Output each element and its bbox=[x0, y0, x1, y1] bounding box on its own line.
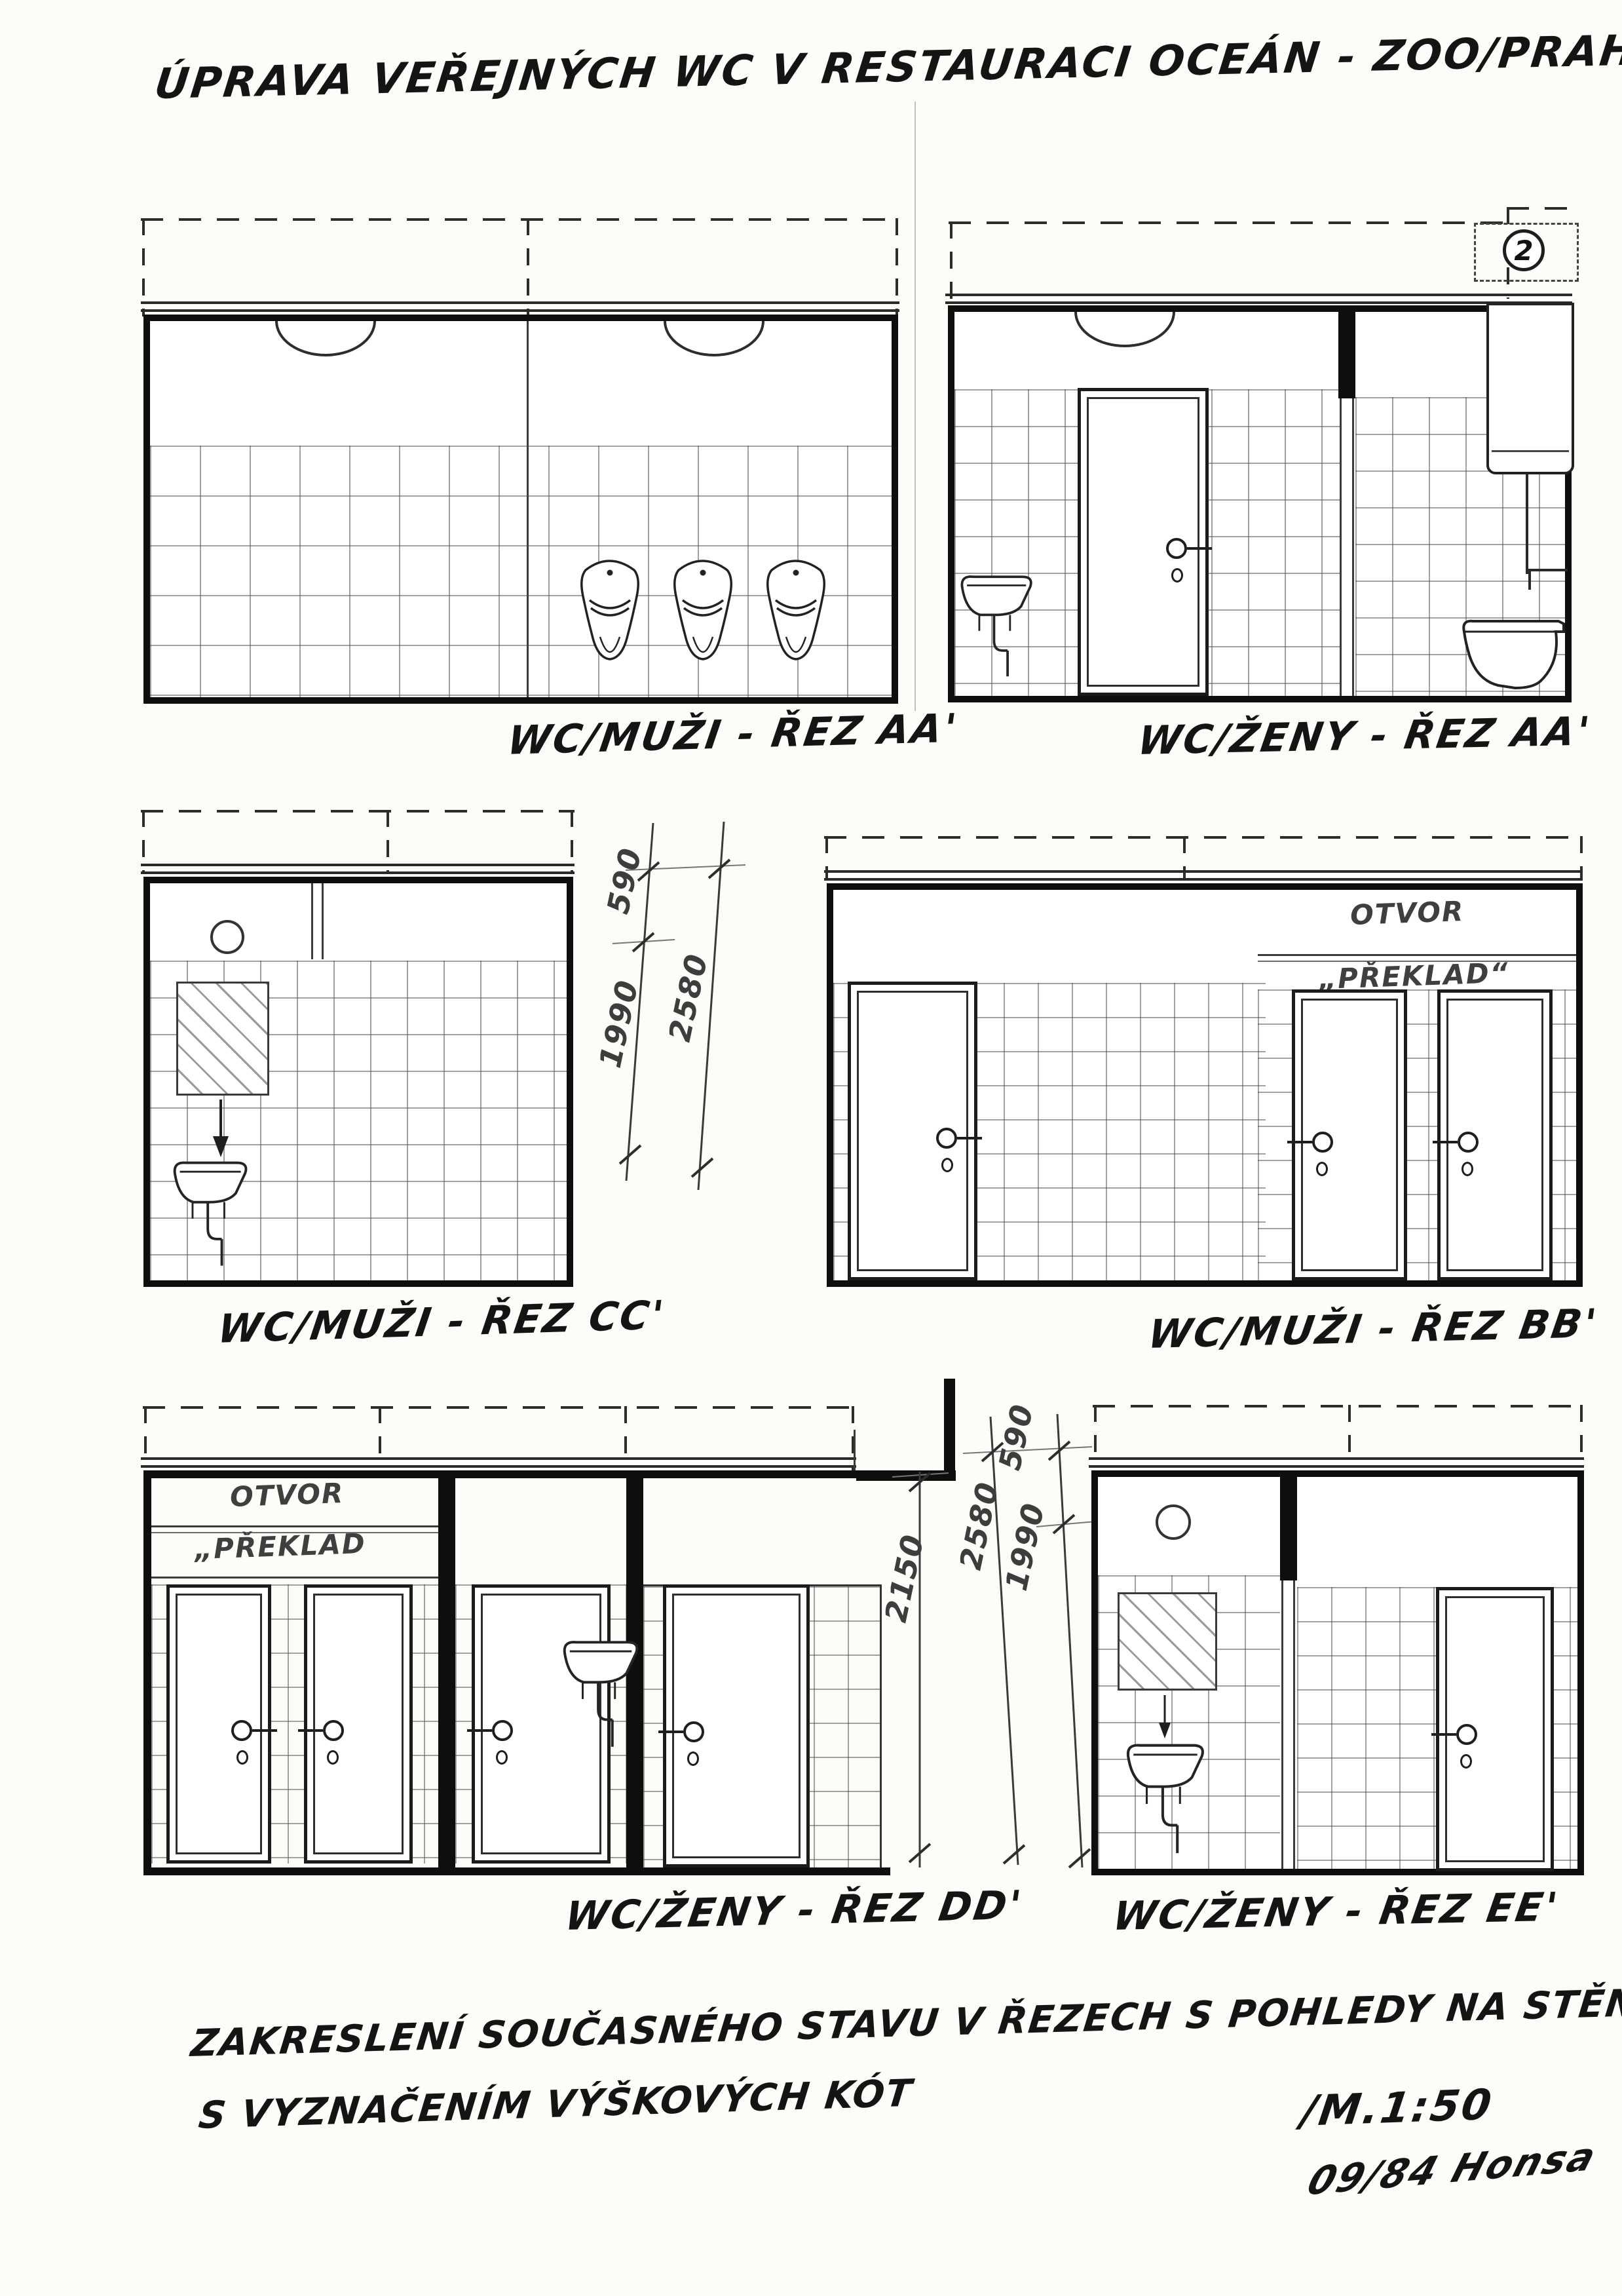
d4-door-2-keyhole bbox=[1316, 1162, 1328, 1176]
d2-lamp-arc bbox=[1072, 312, 1177, 350]
d5-otvor-label: OTVOR bbox=[229, 1477, 345, 1513]
d4-door-1 bbox=[848, 982, 977, 1280]
d3-caption: WC/MUŽI - ŘEZ CC' bbox=[215, 1292, 668, 1352]
d5-washbasin bbox=[561, 1620, 645, 1774]
dim-row3-1990: 1990 bbox=[998, 1499, 1051, 1594]
scale-label: /M.1:50 bbox=[1298, 2080, 1496, 2136]
d3-washbasin bbox=[171, 1156, 254, 1278]
d5-door-4-keyhole bbox=[687, 1751, 699, 1766]
d5-door-4-leaf bbox=[672, 1594, 801, 1858]
d4-ceiling-dashed-line bbox=[824, 836, 1583, 839]
d5-door-2-keyhole bbox=[327, 1750, 339, 1765]
d5-heavy-top bbox=[143, 1470, 859, 1478]
d5-dashed-a bbox=[144, 1406, 147, 1459]
d4-door-2 bbox=[1292, 989, 1407, 1280]
d5-wall-post-ab bbox=[438, 1470, 455, 1875]
d6-washbasin bbox=[1124, 1738, 1211, 1866]
d2-caption: WC/ŽENY - ŘEZ AA' bbox=[1135, 708, 1594, 764]
d6-door-handle bbox=[1456, 1724, 1477, 1745]
d2-post-edge-b bbox=[1352, 398, 1354, 696]
d2-door bbox=[1078, 388, 1209, 696]
row2-dimension-chain: 590 1990 2580 bbox=[590, 814, 747, 1220]
d5-caption: WC/ŽENY - ŘEZ DD' bbox=[562, 1883, 1026, 1940]
d1-urinals bbox=[579, 557, 828, 674]
d4-wall-section: OTVOR „PŘEKLAD“ bbox=[827, 883, 1583, 1287]
d6-door bbox=[1436, 1587, 1554, 1871]
d6-dashed-mid bbox=[1348, 1405, 1351, 1457]
d6-post-edge-a bbox=[1281, 1580, 1283, 1869]
d6-wall-section bbox=[1091, 1470, 1584, 1875]
d5-door-2-leaf bbox=[313, 1594, 404, 1854]
d6-dashed-right bbox=[1580, 1405, 1583, 1457]
d5-door-1 bbox=[166, 1584, 271, 1864]
d2-wall-post bbox=[1338, 312, 1355, 398]
d6-wall-post bbox=[1280, 1477, 1297, 1580]
d5-step-thin-line bbox=[854, 1430, 856, 1470]
d4-door-3-leaf bbox=[1446, 999, 1543, 1271]
d5-door-4-handle bbox=[683, 1721, 704, 1742]
dim-row3-2150: 2150 bbox=[878, 1531, 931, 1625]
d3-corner-line-a bbox=[311, 883, 313, 959]
d4-door-2-handle bbox=[1312, 1132, 1333, 1153]
scanned-drawing-sheet: ÚPRAVA VEŘEJNÝCH WC V RESTAURACI OCEÁN -… bbox=[0, 0, 1622, 2296]
d6-caption: WC/ŽENY - ŘEZ EE' bbox=[1110, 1885, 1562, 1940]
d6-mirror bbox=[1118, 1592, 1217, 1691]
d4-otvor-label: OTVOR bbox=[1349, 895, 1465, 931]
d4-door-1-handle bbox=[936, 1128, 957, 1149]
d3-dashed-left bbox=[142, 810, 145, 871]
d6-post-edge-b bbox=[1293, 1580, 1295, 1869]
d3-dashed-right bbox=[571, 810, 573, 871]
d2-dashed-left bbox=[950, 221, 952, 299]
d4-door-1-keyhole bbox=[941, 1158, 953, 1172]
d5-preklad-label: „PŘEKLAD bbox=[194, 1527, 366, 1565]
d5-door-3-handle bbox=[492, 1720, 513, 1741]
d3-lintel-double-line bbox=[141, 864, 575, 874]
d4-door-3-handle bbox=[1458, 1132, 1479, 1153]
d3-corner-line-b bbox=[322, 883, 324, 959]
d6-door-leaf bbox=[1445, 1596, 1545, 1862]
d1-wall-section bbox=[143, 315, 898, 704]
footer-note-line1: ZAKRESLENÍ SOUČASNÉHO STAVU V ŘEZECH S P… bbox=[189, 1981, 1622, 2065]
d2-door-leaf bbox=[1087, 397, 1199, 687]
d2-toilet bbox=[1460, 615, 1568, 695]
d5-door-2-handle bbox=[323, 1720, 344, 1741]
d5-heavy-left bbox=[143, 1470, 151, 1875]
d5-door-1-leaf bbox=[176, 1594, 262, 1854]
d6-lintel-double-line bbox=[1089, 1457, 1584, 1468]
d4-caption: WC/MUŽI - ŘEZ BB' bbox=[1145, 1301, 1601, 1358]
d2-item-number-circle: 2 bbox=[1503, 229, 1545, 271]
dim-row2-590: 590 bbox=[600, 844, 649, 917]
d2-ceiling-dashed-line bbox=[949, 221, 1507, 224]
d5-dashed-b bbox=[379, 1406, 381, 1459]
d3-wall-section bbox=[143, 877, 573, 1287]
d1-lamp-arcs bbox=[150, 321, 892, 360]
d5-heavy-floor bbox=[143, 1867, 890, 1875]
d6-dashed-left bbox=[1094, 1405, 1097, 1457]
d3-dashed-mid bbox=[387, 810, 389, 871]
d2-lintel-double-line bbox=[945, 294, 1572, 304]
d4-door-3 bbox=[1437, 989, 1553, 1280]
paper-fold-line bbox=[915, 102, 916, 711]
dim-row2-2580: 2580 bbox=[662, 950, 715, 1044]
d5-door-1-handle bbox=[231, 1720, 252, 1741]
d2-door-handle bbox=[1166, 538, 1187, 559]
d5-door-2 bbox=[304, 1584, 413, 1864]
d2-cistern-pipe bbox=[1526, 474, 1528, 574]
d4-door-3-keyhole bbox=[1462, 1162, 1473, 1176]
d4-lintel-double-line bbox=[824, 870, 1583, 881]
d3-ceiling-dashed-line bbox=[141, 810, 575, 813]
d1-lintel-double-line bbox=[141, 301, 899, 312]
d4-door-1-leaf bbox=[857, 991, 968, 1271]
d3-mirror bbox=[176, 982, 269, 1096]
d2-dashed-step-h bbox=[1507, 207, 1580, 210]
d5-lintel-double-line bbox=[141, 1457, 856, 1468]
dim-2150-line: 2150 bbox=[886, 1460, 951, 1879]
d5-door-1-keyhole bbox=[236, 1750, 248, 1765]
d1-ceiling-dashed-line bbox=[141, 218, 899, 221]
d2-faucet-v bbox=[1528, 569, 1531, 590]
d6-door-keyhole bbox=[1460, 1754, 1472, 1769]
d5-ceiling-dashed-line bbox=[143, 1406, 854, 1409]
d2-faucet-h bbox=[1528, 569, 1568, 571]
d5-band-bottom-line bbox=[151, 1577, 438, 1578]
d6-height-arrow bbox=[1152, 1693, 1178, 1740]
d6-ceiling-lamp bbox=[1156, 1504, 1191, 1540]
d5-door-4 bbox=[663, 1584, 810, 1867]
row3-dimension-chain: 590 2580 1990 bbox=[958, 1396, 1095, 1878]
d3-height-arrow bbox=[206, 1097, 235, 1160]
d5-dashed-c bbox=[624, 1406, 627, 1459]
sheet-title: ÚPRAVA VEŘEJNÝCH WC V RESTAURACI OCEÁN -… bbox=[152, 26, 1622, 109]
d3-ceiling-lamp bbox=[210, 920, 244, 954]
footer-note-line2: S VYZNAČENÍM VÝŠKOVÝCH KÓT bbox=[197, 2072, 915, 2137]
d2-washbasin bbox=[958, 566, 1038, 692]
d6-ceiling-dashed-line bbox=[1093, 1405, 1583, 1407]
d5-door-3-keyhole bbox=[496, 1750, 508, 1765]
d1-caption: WC/MUŽI - ŘEZ AA' bbox=[504, 706, 961, 764]
d2-door-keyhole bbox=[1171, 568, 1183, 583]
d2-post-edge-a bbox=[1340, 398, 1342, 696]
d2-flush-cistern bbox=[1486, 303, 1574, 474]
dim-row3-590: 590 bbox=[992, 1400, 1040, 1473]
d2-wall-section bbox=[948, 305, 1572, 702]
d4-door-2-leaf bbox=[1301, 999, 1398, 1271]
signature: 09/84 Honsa bbox=[1302, 2133, 1603, 2204]
